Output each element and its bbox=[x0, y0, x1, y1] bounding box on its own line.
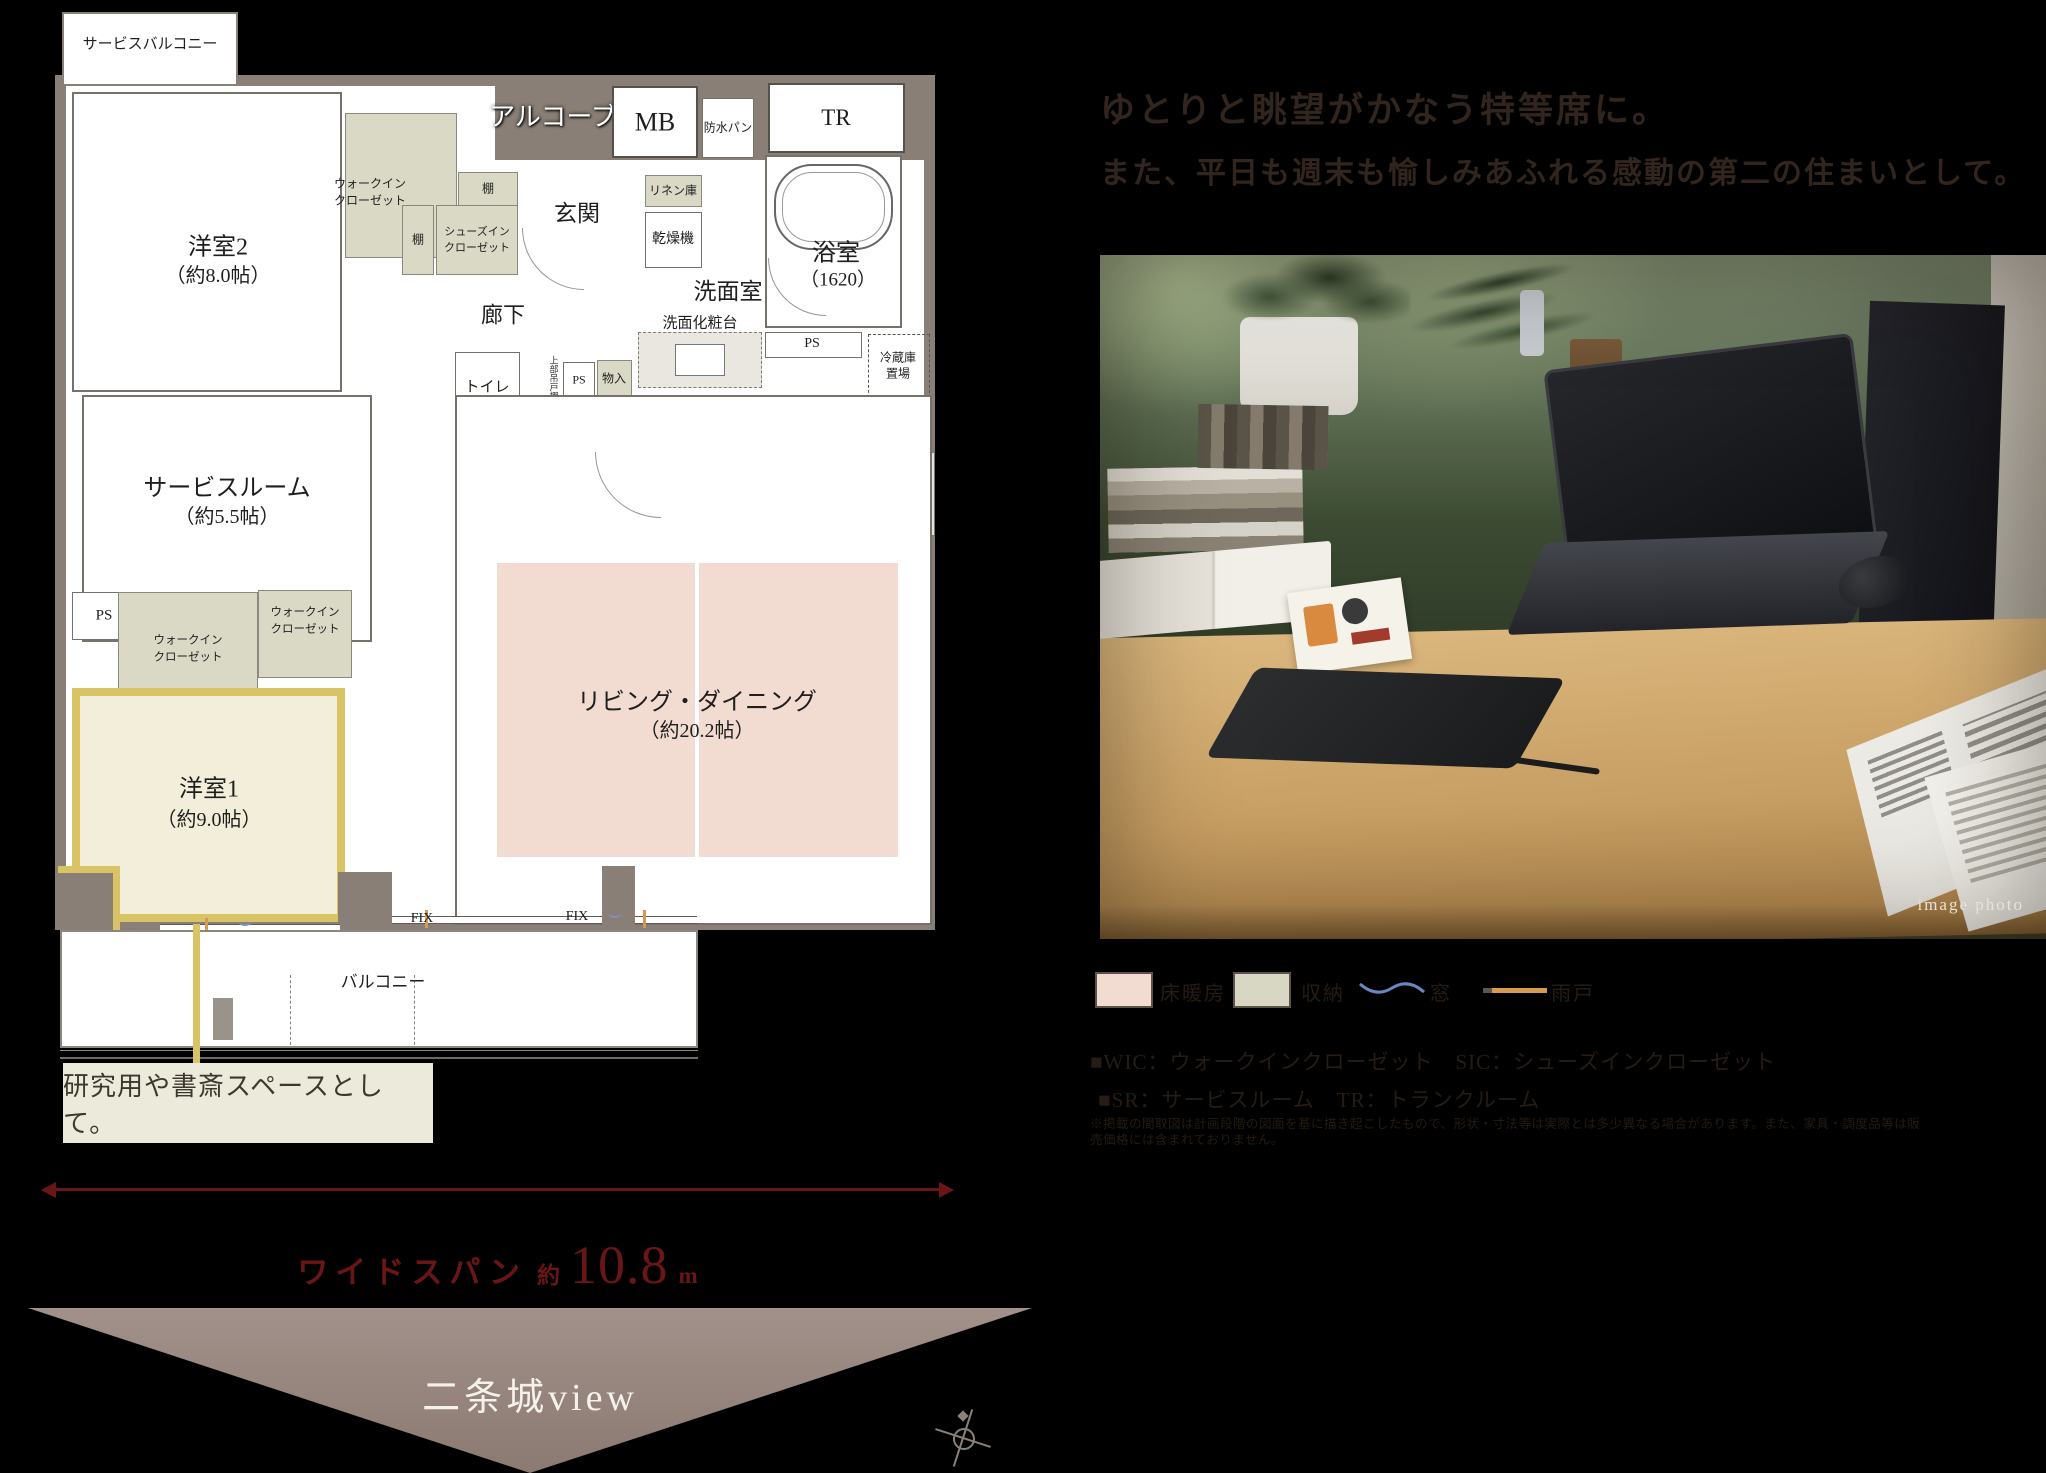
abbreviation-note-2: ■SR：サービスルーム TR：トランクルーム bbox=[1098, 1084, 1540, 1114]
photo-vignette bbox=[1100, 255, 2046, 939]
image-photo-caption: image photo bbox=[1917, 895, 2024, 915]
sash-tick bbox=[643, 910, 646, 928]
legend-wave-icon bbox=[1358, 976, 1426, 1002]
wic-left-label2: クローゼット bbox=[154, 652, 223, 665]
sic-label1: シューズイン bbox=[444, 226, 509, 238]
toilet-label: トイレ bbox=[464, 380, 509, 397]
trunk-room-label: TR bbox=[821, 105, 850, 131]
wall-notch bbox=[58, 866, 120, 930]
fridge-label2: 置場 bbox=[886, 367, 910, 380]
callout-leader-line bbox=[193, 924, 200, 1063]
wic-top-label2: クローゼット bbox=[334, 194, 406, 207]
legend-label-window: 窓 bbox=[1430, 977, 1452, 1006]
hallway-label: 廊下 bbox=[481, 304, 525, 329]
legend-swatch-storage bbox=[1233, 972, 1291, 1008]
legend-label-storage: 収納 bbox=[1301, 977, 1345, 1006]
callout-text: 研究用や書斎スペースとして。 bbox=[63, 1066, 433, 1140]
service-room-label: サービスルーム bbox=[143, 476, 310, 503]
bedroom1-size: （約9.0帖） bbox=[157, 809, 262, 831]
desk-photo: image photo bbox=[1100, 255, 2046, 939]
measure-arrow-right bbox=[939, 1182, 954, 1198]
wic-top-label1: ウォークイン bbox=[334, 177, 406, 190]
wall-pier bbox=[602, 866, 635, 930]
shoes-in-closet bbox=[436, 205, 518, 275]
balcony-label: バルコニー bbox=[341, 972, 426, 991]
alcove-label: アルコーブ bbox=[489, 102, 617, 131]
bedroom2-size: （約8.0帖） bbox=[166, 265, 271, 287]
measure-arrow-left bbox=[41, 1182, 56, 1198]
callout-box: 研究用や書斎スペースとして。 bbox=[63, 1063, 433, 1143]
disclaimer-note: ※掲載の間取図は計画段階の図面を基に描き起こしたもので、形状・寸法等は実際とは多… bbox=[1090, 1116, 1930, 1149]
upper-cabinet-label: 上部吊戸棚 bbox=[549, 356, 558, 401]
waterproof-pan-label: 防水パン bbox=[704, 121, 753, 134]
wall-pier bbox=[338, 872, 392, 930]
ld-size: （約20.2帖） bbox=[640, 720, 755, 742]
glass-wave-mark bbox=[238, 916, 252, 926]
view-label: 二条城view bbox=[422, 1366, 638, 1421]
balcony-divider bbox=[290, 975, 291, 1045]
glass-wave-mark bbox=[608, 908, 622, 918]
washroom-label: 洗面室 bbox=[694, 279, 763, 305]
compass-icon bbox=[933, 1406, 993, 1470]
wic-right-label1: ウォークイン bbox=[271, 607, 340, 620]
bedroom1-label: 洋室1 bbox=[179, 777, 239, 804]
fridge-label1: 冷蔵庫 bbox=[880, 351, 916, 364]
abbreviation-note-1: ■WIC：ウォークインクローゼット SIC：シューズインクローゼット bbox=[1090, 1046, 1776, 1076]
service-balcony-label: サービスバルコニー bbox=[83, 37, 218, 54]
bathtub-inner bbox=[782, 172, 885, 242]
shelf-top-label: 棚 bbox=[482, 182, 494, 195]
balcony-pillar bbox=[213, 998, 233, 1040]
dryer-label: 乾燥機 bbox=[652, 232, 694, 248]
balcony-rail bbox=[60, 1050, 698, 1059]
measure-value: 10.8 bbox=[570, 1234, 669, 1296]
wic-left-label1: ウォークイン bbox=[154, 635, 223, 648]
vanity-label: 洗面化粧台 bbox=[662, 316, 737, 333]
meter-box-label: MB bbox=[635, 107, 675, 136]
measure-arrow-line bbox=[55, 1188, 940, 1191]
measure-label: ワイドスパン bbox=[297, 1247, 527, 1292]
measure-approx: 約 bbox=[537, 1256, 560, 1290]
vanity-bowl bbox=[675, 344, 725, 376]
shelf-side-label: 棚 bbox=[412, 233, 424, 246]
sic-label2: クローゼット bbox=[444, 242, 510, 254]
ld-label: リビング・ダイニング bbox=[577, 690, 817, 717]
ps-left-label: PS bbox=[96, 608, 113, 625]
service-room-size: （約5.5帖） bbox=[175, 506, 280, 528]
measure-unit: m bbox=[678, 1263, 697, 1289]
measure-caption: ワイドスパン 約 10.8 m bbox=[55, 1234, 940, 1296]
bedroom2-label: 洋室2 bbox=[188, 235, 248, 262]
view-triangle: 二条城view bbox=[28, 1308, 1032, 1473]
legend-swatch-floor-heating bbox=[1095, 972, 1153, 1008]
page: サービスバルコニー アルコーブ MB 防水パン TR 玄関 洋室2 （約8.0帖… bbox=[0, 0, 2046, 1473]
fix-label: FIX bbox=[411, 911, 434, 927]
linen-label: リネン庫 bbox=[649, 184, 697, 197]
storage-label: 物入 bbox=[602, 372, 626, 385]
ps-bath-label: PS bbox=[804, 336, 820, 352]
entrance-label: 玄関 bbox=[554, 201, 600, 227]
headline-line2: また、平日も週末も愉しみあふれる感動の第二の住まいとして。 bbox=[1100, 148, 2026, 192]
headline-line1: ゆとりと眺望がかなう特等席に。 bbox=[1100, 82, 1670, 133]
legend-line-icon bbox=[1483, 988, 1547, 993]
wic-right-label2: クローゼット bbox=[271, 624, 340, 637]
ps-hall-label: PS bbox=[572, 373, 585, 386]
floor-plan: サービスバルコニー アルコーブ MB 防水パン TR 玄関 洋室2 （約8.0帖… bbox=[0, 0, 1000, 1160]
fix-label: FIX bbox=[566, 909, 589, 925]
legend-label-shutter: 雨戸 bbox=[1551, 977, 1595, 1006]
legend-label-floor-heating: 床暖房 bbox=[1160, 977, 1226, 1006]
